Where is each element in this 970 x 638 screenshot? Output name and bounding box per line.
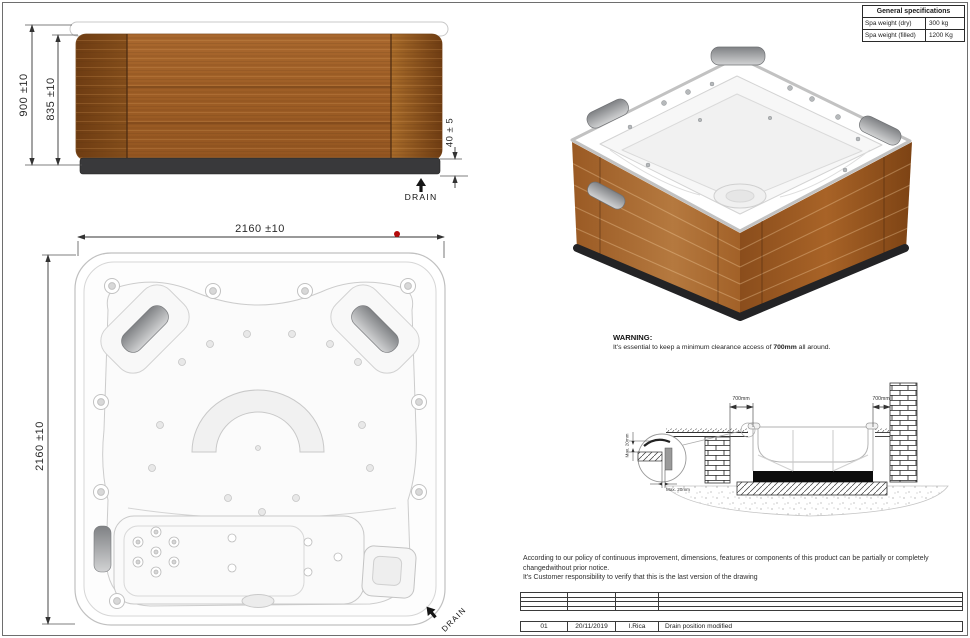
clearance-label-right: 700mm: [861, 396, 901, 402]
wall-left: [705, 437, 730, 483]
dim-plan-depth: 2160 ±10: [34, 386, 46, 506]
dim-plan-width: 2160 ±10: [200, 223, 320, 235]
spec-label: Spa weight (filled): [863, 30, 926, 42]
spec-value: 300 kg: [926, 18, 965, 30]
revision-number: 01: [521, 622, 568, 632]
dim-base-height: 40 ± 5: [445, 98, 456, 168]
side-view: [25, 22, 468, 192]
spec-value: 1200 Kg: [926, 30, 965, 42]
drawing-art: [0, 0, 970, 638]
detail-gap-vertical-label: Max. 20mm: [625, 424, 630, 468]
disclaimer-line1: According to our policy of continuous im…: [523, 555, 929, 562]
concrete-pad: [737, 482, 887, 495]
table-row: Spa weight (dry) 300 kg: [863, 18, 965, 30]
spa-base: [753, 471, 873, 482]
spec-label: Spa weight (dry): [863, 18, 926, 30]
disclaimer-line2: changedwithout prior notice.: [523, 565, 609, 572]
drawing-sheet: General specifications Spa weight (dry) …: [0, 0, 970, 638]
revision-table: 01 20/11/2019 I.Rica Drain position modi…: [520, 621, 963, 632]
dim-height-panel: 835 ±10: [45, 59, 57, 139]
drain-arrow-icon: [416, 178, 426, 192]
headrest-back: [711, 47, 765, 65]
table-row: 01 20/11/2019 I.Rica Drain position modi…: [521, 622, 963, 632]
spec-table-title: General specifications: [863, 6, 965, 18]
general-specifications-table: General specifications Spa weight (dry) …: [862, 5, 965, 42]
revision-author: I.Rica: [616, 622, 659, 632]
revision-date: 20/11/2019: [568, 622, 616, 632]
clearance-label-left: 700mm: [721, 396, 761, 402]
revision-table-empty-rows: [520, 592, 963, 611]
warning-text: It's essential to keep a minimum clearan…: [613, 344, 830, 351]
table-row: Spa weight (filled) 1200 Kg: [863, 30, 965, 42]
revision-marker-dot: [394, 231, 400, 237]
section-view: [629, 383, 948, 516]
iso-view: [572, 47, 912, 318]
dim-height-outer: 900 ±10: [18, 55, 30, 135]
warning-title: WARNING:: [613, 333, 652, 342]
drain-label-side: DRAIN: [391, 192, 451, 202]
disclaimer-line3: It's Customer responsibility to verify t…: [523, 574, 758, 581]
filter-hatch: [361, 545, 416, 599]
lounger-headrest: [94, 526, 111, 572]
plan-view: [42, 231, 445, 625]
revision-description: Drain position modified: [659, 622, 963, 632]
floor-drain: [242, 595, 274, 608]
spa-section: [753, 427, 873, 471]
detail-gap-horizontal-label: Max. 20mm: [656, 487, 700, 492]
